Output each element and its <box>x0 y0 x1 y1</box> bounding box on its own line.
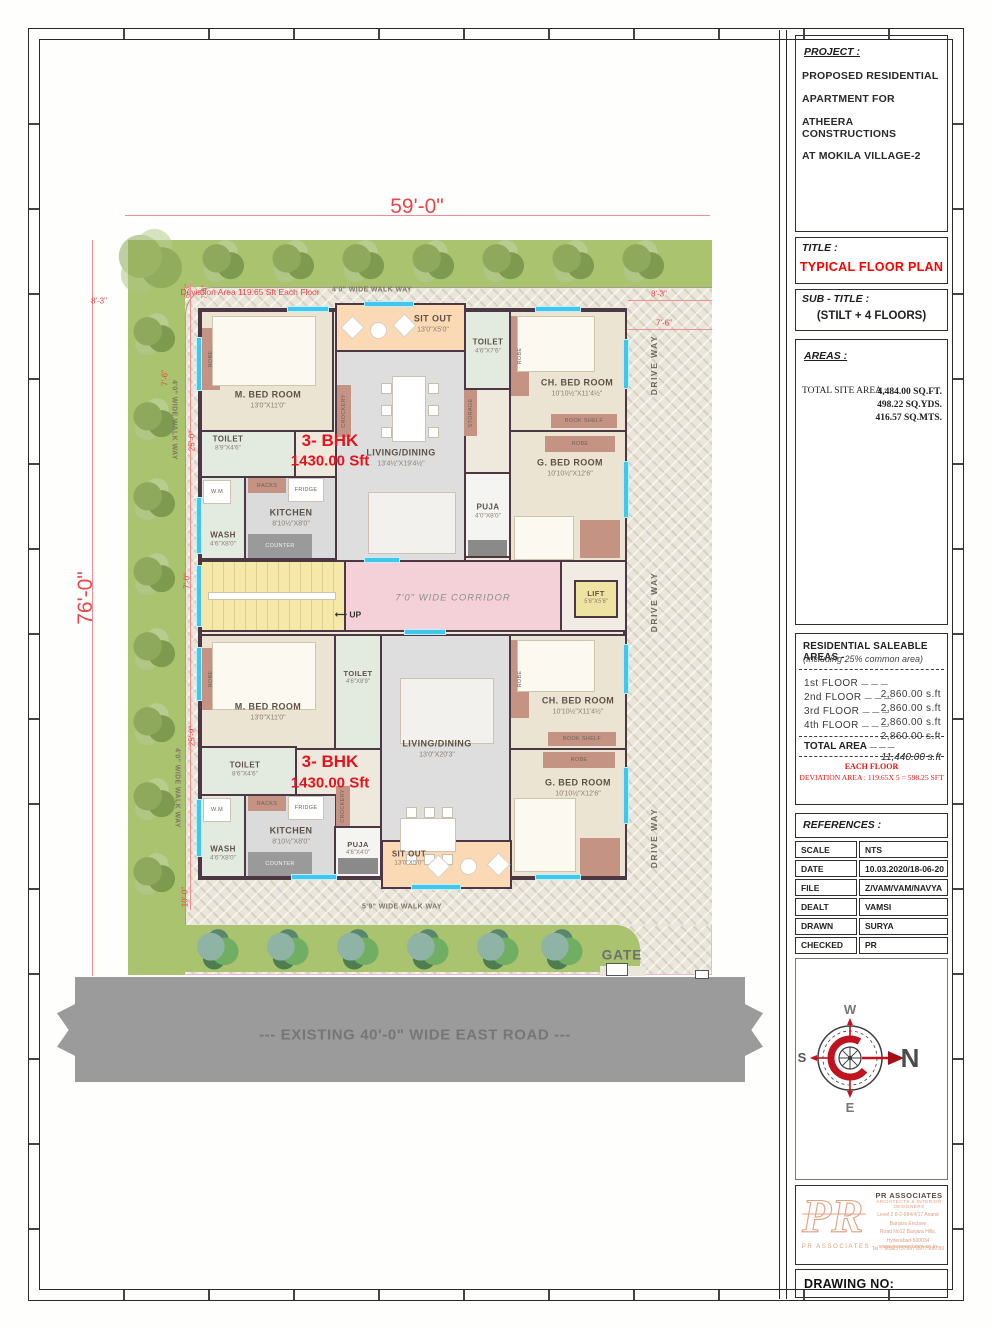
frame-ticks-left <box>29 40 39 1289</box>
sheet-border-inner <box>39 39 953 1290</box>
frame-ticks-top <box>40 29 952 39</box>
drawing-sheet: --- EXISTING 40'-0" WIDE EAST ROAD --- G… <box>0 0 992 1329</box>
frame-ticks-bottom <box>40 1290 952 1300</box>
frame-ticks-right <box>953 40 963 1289</box>
